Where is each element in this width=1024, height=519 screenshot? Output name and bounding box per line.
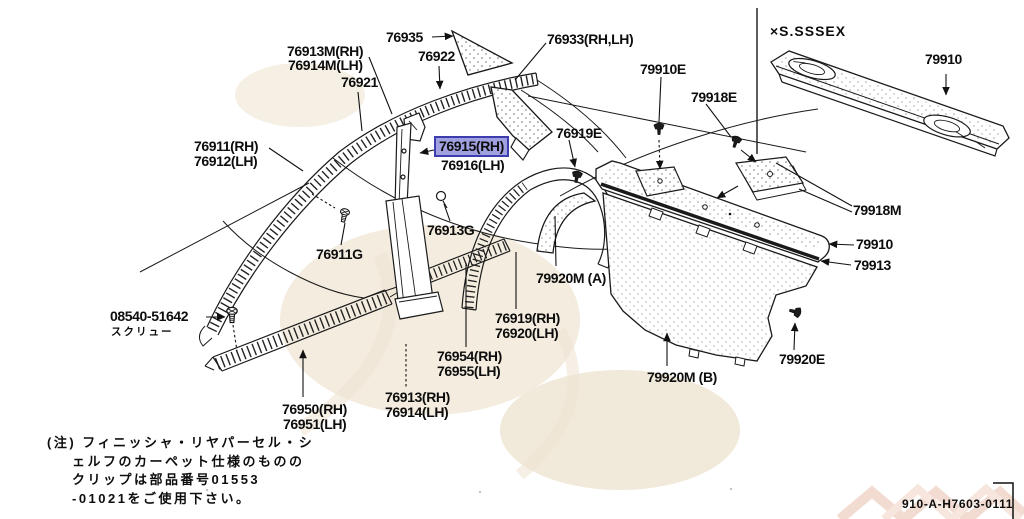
- footnote-line-3: クリップは部品番号01553: [72, 471, 314, 490]
- part-label-79920MB[interactable]: 79920M (B): [647, 370, 717, 384]
- part-label-76913M[interactable]: 76913M(RH): [287, 44, 363, 58]
- part-label-76914M[interactable]: 76914M(LH): [288, 58, 363, 72]
- part-label-76913[interactable]: 76913(RH): [385, 390, 450, 404]
- part-label-76921[interactable]: 76921: [341, 75, 378, 89]
- footnote-line-1: (注) フィニッシャ・リヤパーセル・シ: [47, 434, 314, 453]
- part-label-76951[interactable]: 76951(LH): [283, 417, 346, 431]
- part-label-76920[interactable]: 76920(LH): [495, 326, 558, 340]
- part-label-76950[interactable]: 76950(RH): [282, 402, 347, 416]
- part-label-79913[interactable]: 79913: [854, 258, 891, 272]
- part-label-76914[interactable]: 76914(LH): [385, 405, 448, 419]
- part-label-08540-51642[interactable]: 08540-51642: [110, 309, 188, 323]
- footnote-line-2: ェルフのカーペット仕様のものの: [72, 453, 314, 472]
- part-label-76955[interactable]: 76955(LH): [437, 364, 500, 378]
- part-label-76922[interactable]: 76922: [418, 49, 455, 63]
- part-label-76935[interactable]: 76935: [386, 30, 423, 44]
- part-label-79918E[interactable]: 79918E: [691, 90, 737, 104]
- part-label-79910[interactable]: 79910: [856, 237, 893, 251]
- part-label-79910E[interactable]: 79910E: [640, 62, 686, 76]
- part-label-76919E[interactable]: 76919E: [556, 126, 602, 140]
- part-label-76911G[interactable]: 76911G: [316, 247, 363, 261]
- part-label-76919[interactable]: 76919(RH): [495, 311, 560, 325]
- highlighted-part-label[interactable]: 76915(RH): [434, 136, 509, 157]
- part-label-76911[interactable]: 76911(RH): [194, 139, 258, 153]
- part-label-76916[interactable]: 76916(LH): [441, 158, 504, 172]
- inset-part-label-79910[interactable]: 79910: [925, 52, 962, 66]
- part-label-76913G[interactable]: 76913G: [427, 223, 474, 237]
- part-label-79920E[interactable]: 79920E: [779, 352, 825, 366]
- part-label-79920MA[interactable]: 79920M (A): [536, 271, 606, 285]
- part-label-screw-ja: スクリュー: [111, 327, 174, 338]
- inset-variant-label: ×S.SSSEX: [770, 24, 846, 38]
- diagram-doc-number: 910-A-H7603-0111: [902, 497, 1013, 511]
- part-label-76933[interactable]: 76933(RH,LH): [547, 32, 633, 46]
- part-label-76912[interactable]: 76912(LH): [194, 154, 257, 168]
- parts-diagram-page: 76935 76913M(RH) 76914M(LH) 76921 76922 …: [0, 0, 1024, 519]
- footnote: (注) フィニッシャ・リヤパーセル・シ ェルフのカーペット仕様のものの クリップ…: [47, 434, 314, 508]
- part-label-79918M[interactable]: 79918M: [853, 203, 901, 217]
- part-label-76954[interactable]: 76954(RH): [437, 349, 502, 363]
- footnote-line-4: -01021をご使用下さい。: [72, 490, 314, 509]
